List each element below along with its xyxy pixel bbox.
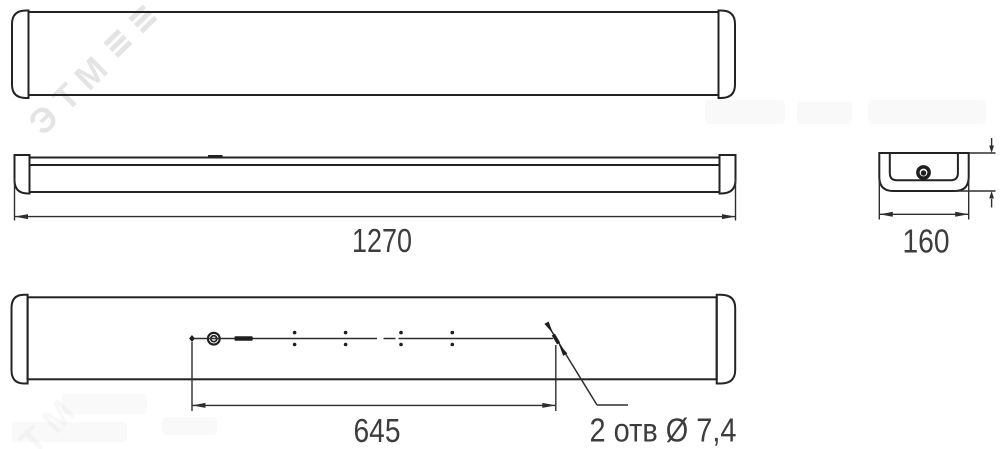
svg-text:2 отв Ø 7,4: 2 отв Ø 7,4 [590,412,737,449]
svg-text:1270: 1270 [352,222,412,259]
svg-text:160: 160 [903,223,950,260]
svg-text:645: 645 [354,412,401,449]
